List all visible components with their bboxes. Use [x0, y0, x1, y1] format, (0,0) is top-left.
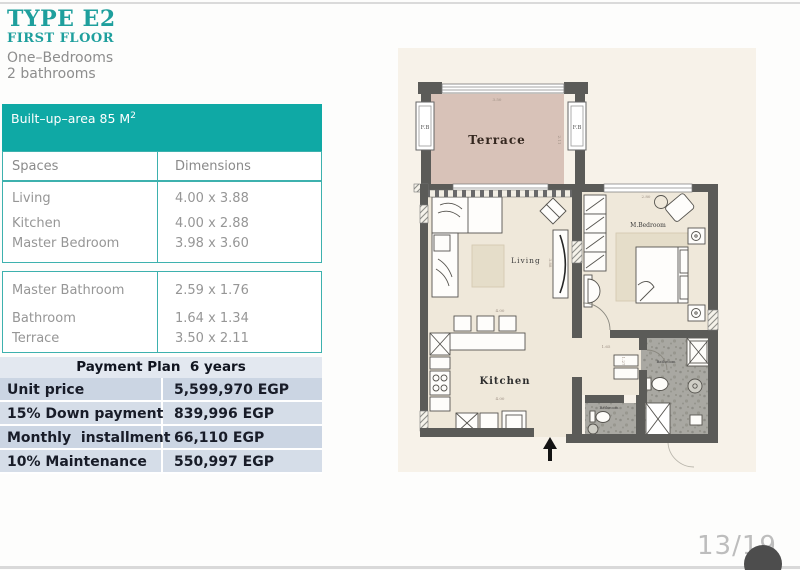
plan-label-fb-left: F.B	[421, 125, 430, 131]
floor-subtitle: FIRST FLOOR	[7, 31, 114, 46]
plan-dim-hall-w: 1.65	[602, 344, 611, 349]
space-name: Living	[12, 189, 157, 209]
bathrooms-line: 2 bathrooms	[7, 66, 96, 83]
payment-row: 10% Maintenance 550,997 EGP	[0, 450, 322, 474]
plan-label-bathroom-small: Bathroom	[599, 405, 618, 410]
payment-label: 15% Down payment	[0, 402, 163, 424]
payment-label: Unit price	[0, 378, 163, 400]
dimensions-col-header: Dimensions	[158, 152, 321, 180]
plan-label-living: Living	[511, 256, 541, 265]
plan-label-bedroom: M.Bedroom	[630, 222, 666, 229]
top-divider	[0, 2, 800, 4]
plan-label-bathroom-master: Bathroom	[656, 359, 675, 364]
space-name: Bathroom	[12, 309, 157, 329]
space-dim: 3.50 x 2.11	[175, 329, 321, 349]
payment-label: Monthly installment	[0, 426, 163, 448]
bedrooms-line: One–Bedrooms	[7, 50, 113, 67]
spaces-col-header: Spaces	[3, 152, 158, 180]
payment-value: 66,110 EGP	[163, 426, 322, 448]
payment-row: Unit price 5,599,970 EGP	[0, 378, 322, 402]
page-title: TYPE E2	[7, 6, 116, 32]
space-dim: 2.59 x 1.76	[175, 281, 321, 301]
plan-dim-living-d: 3.88	[548, 259, 553, 268]
payment-row: 15% Down payment 839,996 EGP	[0, 402, 322, 426]
flyer-page: TYPE E2 FIRST FLOOR One–Bedrooms 2 bathr…	[0, 0, 800, 570]
plan-dim-living-w: 4.00	[496, 308, 505, 313]
builtup-area-sup: 2	[130, 111, 136, 121]
plan-dim-terrace-d: 2.11	[557, 136, 562, 145]
bottom-divider	[0, 566, 800, 569]
space-dim: 4.00 x 2.88	[175, 214, 321, 234]
space-dim: 1.64 x 1.34	[175, 309, 321, 329]
space-dim: 3.98 x 3.60	[175, 234, 321, 254]
builtup-area-label: Built–up–area 85 M	[11, 111, 130, 126]
payment-label: 10% Maintenance	[0, 450, 163, 472]
spaces-group-1: Living Kitchen Master Bedroom 4.00 x 3.8…	[2, 181, 322, 263]
floor-plan: Terrace Living Kitchen M.Bedroom Bathroo…	[390, 45, 760, 475]
plan-label-terrace: Terrace	[468, 133, 526, 147]
space-name: Terrace	[12, 329, 157, 349]
plan-label-kitchen: Kitchen	[479, 376, 530, 387]
payment-value: 5,599,970 EGP	[163, 378, 322, 400]
plan-dim-kitchen-w: 4.00	[496, 396, 505, 401]
plan-dim-terrace-w: 3.50	[493, 97, 502, 102]
space-name: Master Bathroom	[12, 281, 157, 301]
space-name: Kitchen	[12, 214, 157, 234]
payment-value: 839,996 EGP	[163, 402, 322, 424]
space-name: Master Bedroom	[12, 234, 157, 254]
payment-plan-table: Payment Plan 6 years Unit price 5,599,97…	[0, 357, 322, 474]
payment-value: 550,997 EGP	[163, 450, 322, 472]
plan-label-fb-right: F.B	[573, 125, 582, 131]
builtup-area-banner: Built–up–area 85 M2	[2, 104, 322, 151]
spaces-group-2: Master Bathroom Bathroom Terrace 2.59 x …	[2, 271, 322, 353]
payment-row: Monthly installment 66,110 EGP	[0, 426, 322, 450]
plan-dim-hall-d: 1.27	[621, 357, 626, 366]
payment-plan-title: Payment Plan 6 years	[0, 357, 322, 378]
plan-dim-bedroom-w: 2.80	[642, 194, 651, 199]
spaces-header-row: Spaces Dimensions	[2, 151, 322, 181]
space-dim: 4.00 x 3.88	[175, 189, 321, 209]
